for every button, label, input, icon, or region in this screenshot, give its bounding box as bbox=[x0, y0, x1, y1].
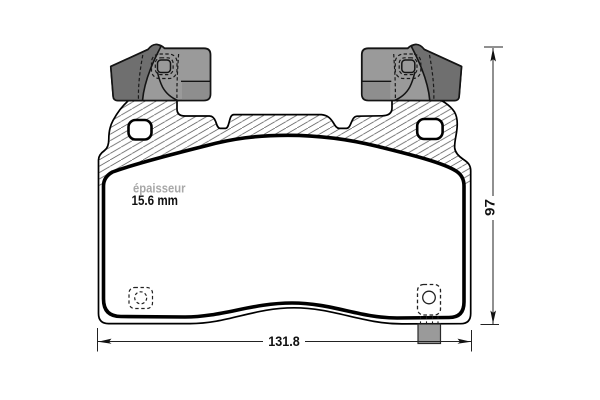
svg-text:97: 97 bbox=[482, 199, 498, 216]
svg-text:131.8: 131.8 bbox=[268, 333, 300, 349]
svg-text:15.6 mm: 15.6 mm bbox=[132, 192, 179, 208]
